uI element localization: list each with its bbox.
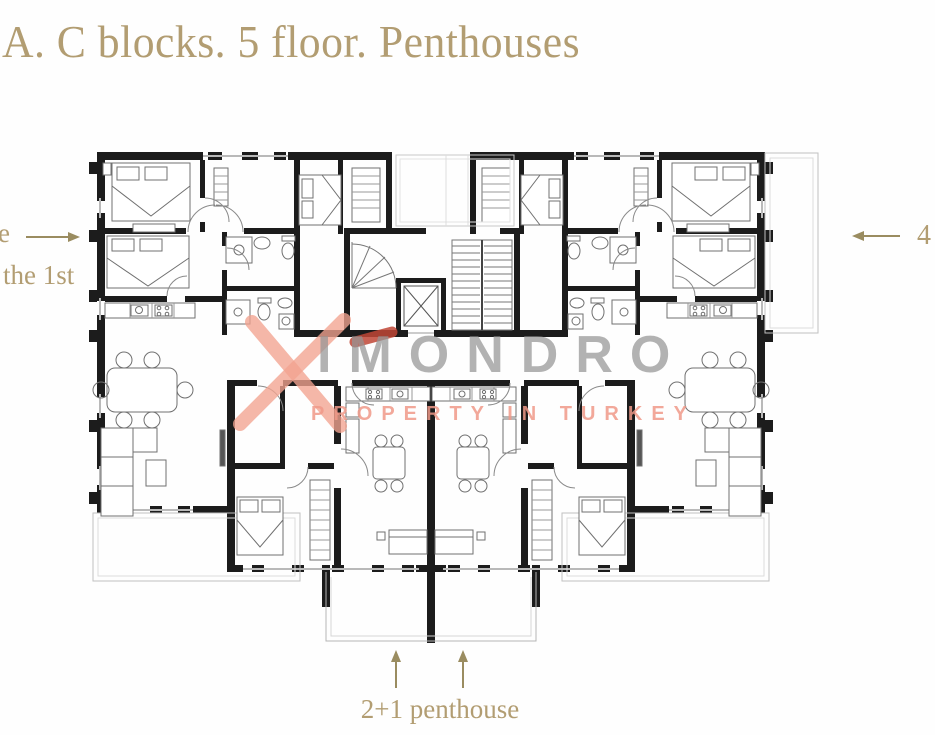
winder-stair bbox=[352, 242, 396, 288]
page: A. C blocks. 5 floor. Penthouses e the 1… bbox=[0, 0, 935, 735]
watermark-tagline: PROPERTY IN TURKEY bbox=[311, 404, 696, 424]
bottom-arrow-left-icon bbox=[391, 650, 401, 688]
right-terrace bbox=[765, 153, 818, 333]
bottom-arrow-right-icon bbox=[458, 650, 468, 688]
left-arrow-icon bbox=[26, 232, 80, 242]
watermark-brand: IMONDRO bbox=[317, 329, 687, 381]
right-arrow-icon bbox=[852, 231, 900, 241]
main-stair bbox=[452, 240, 512, 330]
elevator-shaft bbox=[404, 286, 438, 326]
